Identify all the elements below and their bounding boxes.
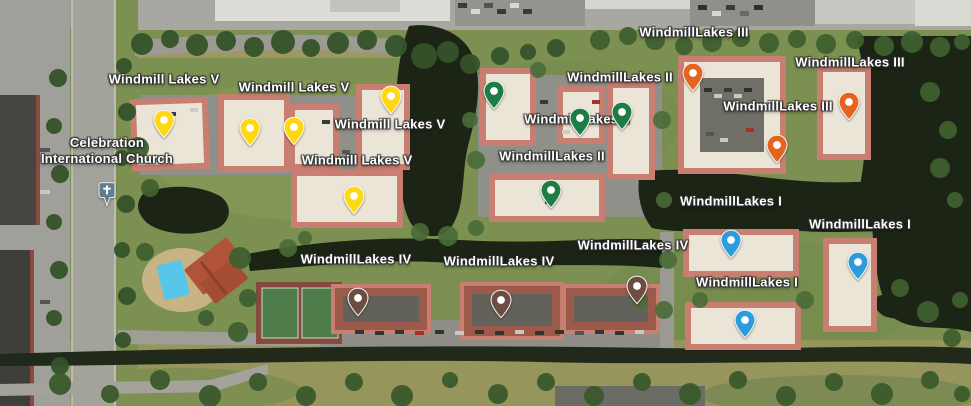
map-pin[interactable] <box>343 185 365 215</box>
map-pin[interactable] <box>838 91 860 121</box>
map-pin[interactable] <box>682 62 704 92</box>
place-pin-icon <box>343 185 365 215</box>
place-pin-icon <box>483 80 505 110</box>
place-pin-icon <box>720 229 742 259</box>
map-pin[interactable] <box>153 109 175 139</box>
church-label-line2: International Church <box>41 151 173 167</box>
place-label[interactable]: WindmillLakes IV <box>444 254 555 269</box>
map-overlay-layer: Celebration International Church Windmil… <box>0 0 971 406</box>
map-pin[interactable] <box>490 289 512 319</box>
place-label[interactable]: WindmillLakes III <box>795 55 905 70</box>
place-label[interactable]: WindmillLakes II <box>567 70 673 85</box>
place-label[interactable]: WindmillLakes I <box>680 194 782 209</box>
map-pin[interactable] <box>611 101 633 131</box>
map-pin[interactable] <box>239 117 261 147</box>
map-pin[interactable] <box>720 229 742 259</box>
place-pin-icon <box>153 109 175 139</box>
place-label[interactable]: WindmillLakes IV <box>578 238 689 253</box>
place-label[interactable]: WindmillLakes III <box>723 99 833 114</box>
place-pin-icon <box>283 116 305 146</box>
map-pin[interactable] <box>766 134 788 164</box>
map-pin[interactable] <box>540 179 562 209</box>
place-pin-icon <box>766 134 788 164</box>
place-pin-icon <box>347 287 369 317</box>
map-pin[interactable] <box>283 116 305 146</box>
place-label[interactable]: Windmill Lakes V <box>302 153 413 168</box>
map-pin[interactable] <box>847 251 869 281</box>
place-label[interactable]: Windmill Lakes V <box>239 80 350 95</box>
map-pin[interactable] <box>483 80 505 110</box>
place-pin-icon <box>838 91 860 121</box>
place-label[interactable]: Windmill Lakes V <box>335 117 446 132</box>
place-pin-icon <box>734 309 756 339</box>
place-pin-icon <box>380 85 402 115</box>
map-viewport[interactable]: Celebration International Church Windmil… <box>0 0 971 406</box>
map-pin[interactable] <box>569 107 591 137</box>
church-pin[interactable] <box>99 182 116 206</box>
place-pin-icon <box>239 117 261 147</box>
place-label[interactable]: WindmillLakes I <box>809 217 911 232</box>
place-label[interactable]: WindmillLakes I <box>696 275 798 290</box>
church-label[interactable]: Celebration International Church <box>41 135 173 167</box>
place-pin-icon <box>490 289 512 319</box>
place-label[interactable]: WindmillLakes III <box>639 25 749 40</box>
place-pin-icon <box>626 275 648 305</box>
place-pin-icon <box>611 101 633 131</box>
place-pin-icon <box>540 179 562 209</box>
place-pin-icon <box>569 107 591 137</box>
place-pin-icon <box>847 251 869 281</box>
map-pin[interactable] <box>380 85 402 115</box>
place-label[interactable]: Windmill Lakes V <box>109 72 220 87</box>
map-pin[interactable] <box>347 287 369 317</box>
place-label[interactable]: WindmillLakes II <box>499 149 605 164</box>
place-pin-icon <box>682 62 704 92</box>
place-label[interactable]: WindmillLakes IV <box>301 252 412 267</box>
map-pin[interactable] <box>734 309 756 339</box>
map-pin[interactable] <box>626 275 648 305</box>
